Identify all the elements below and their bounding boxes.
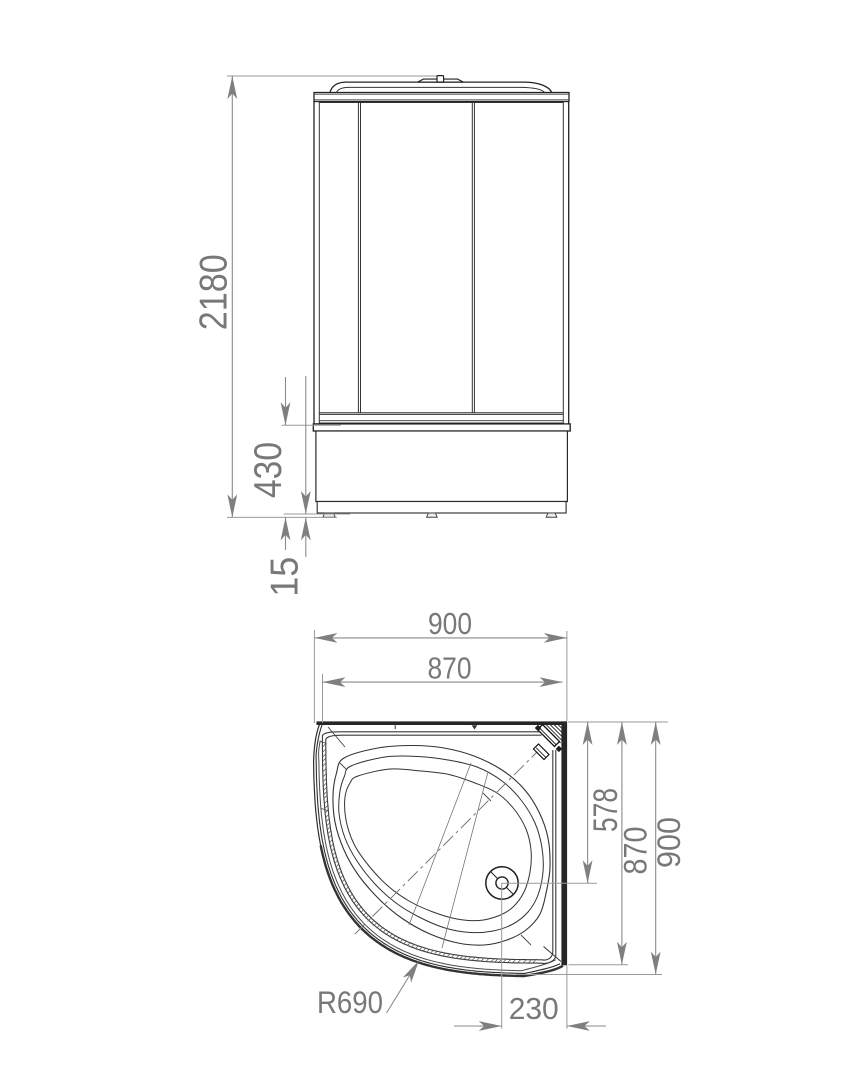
svg-text:870: 870 xyxy=(428,651,472,686)
svg-text:870: 870 xyxy=(618,827,654,875)
svg-text:2180: 2180 xyxy=(193,254,236,330)
svg-text:15: 15 xyxy=(264,557,307,597)
svg-text:900: 900 xyxy=(428,606,472,641)
svg-text:230: 230 xyxy=(509,991,559,1026)
svg-text:430: 430 xyxy=(247,442,290,498)
svg-text:578: 578 xyxy=(587,788,625,832)
svg-text:R690: R690 xyxy=(317,984,383,1020)
svg-text:900: 900 xyxy=(651,817,687,868)
